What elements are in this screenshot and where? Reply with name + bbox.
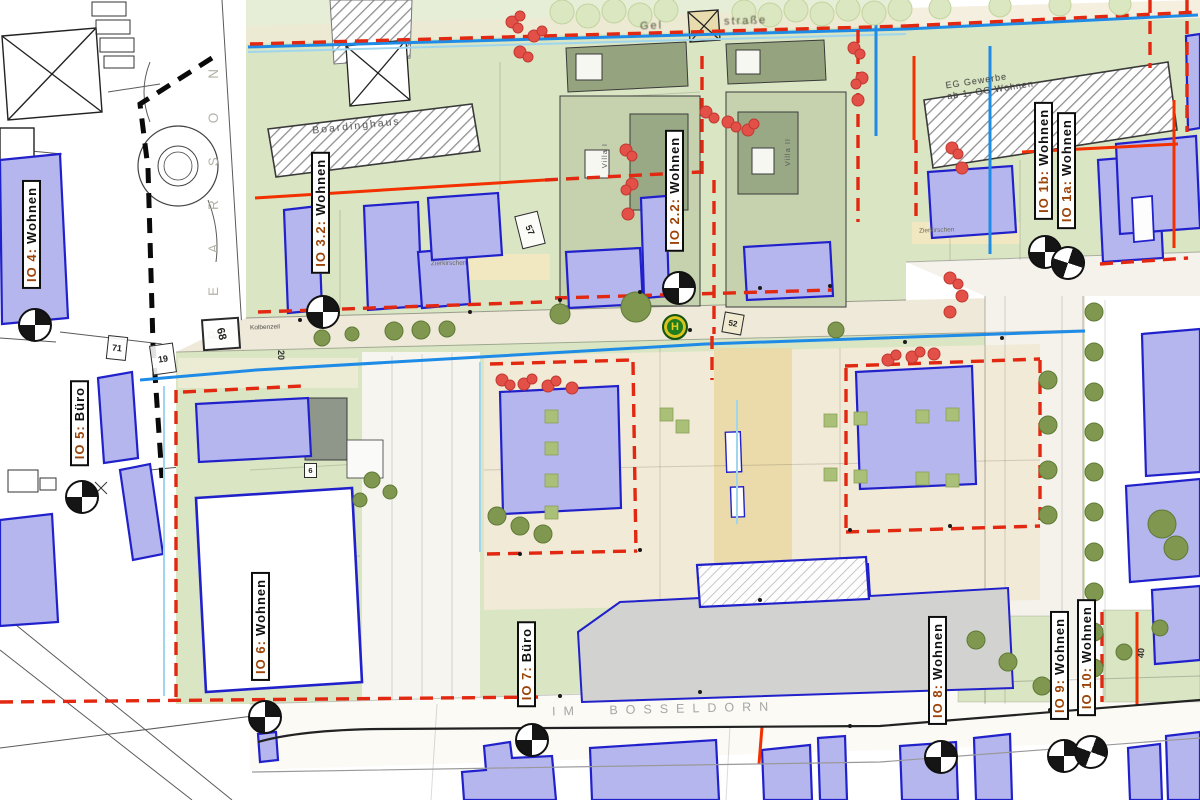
street-name-west-letters: PEARSON bbox=[206, 0, 221, 339]
villa-1-label: Villa I bbox=[600, 143, 609, 168]
io-label-10: IO 10:Wohnen bbox=[1077, 599, 1096, 716]
survey-marker bbox=[18, 308, 52, 342]
parcel-19: 19 bbox=[149, 342, 177, 375]
villa-2-label: Villa II bbox=[783, 138, 792, 166]
survey-marker bbox=[515, 723, 549, 757]
io-label-8: IO 8:Wohnen bbox=[928, 616, 947, 725]
parcel-40: 40 bbox=[1136, 648, 1147, 659]
io-label-4: IO 4:Wohnen bbox=[22, 180, 41, 289]
survey-marker bbox=[662, 271, 696, 305]
bus-stop-icon: H bbox=[662, 314, 688, 340]
parcel-68: 68 bbox=[201, 317, 241, 352]
io-label-7: IO 7:Büro bbox=[517, 621, 536, 707]
survey-marker bbox=[924, 740, 958, 774]
survey-marker bbox=[248, 700, 282, 734]
street-name-top-fragment-right: straße bbox=[724, 14, 768, 27]
zierkirschen-label-east: Zierkirschen bbox=[919, 226, 955, 234]
site-plan-canvas bbox=[0, 0, 1200, 800]
hatched-annex bbox=[697, 557, 869, 607]
io-label-3-2: IO 3.2:Wohnen bbox=[311, 152, 330, 274]
io-label-9: IO 9:Wohnen bbox=[1050, 611, 1069, 720]
parcel-71: 71 bbox=[106, 335, 128, 361]
io-label-5: IO 5:Büro bbox=[70, 380, 89, 466]
io-label-2-2: IO 2.2:Wohnen bbox=[665, 130, 684, 252]
survey-marker bbox=[306, 295, 340, 329]
site-plan: IO 4:Wohnen IO 5:Büro IO 3.2:Wohnen IO 2… bbox=[0, 0, 1200, 800]
io-label-6: IO 6:Wohnen bbox=[251, 572, 270, 681]
street-name-kolbenzeil: Kolbenzeil bbox=[250, 323, 280, 331]
zierkirschen-label-west: Zierkirschen bbox=[431, 260, 467, 268]
parcel-6: 6 bbox=[304, 463, 317, 478]
street-name-top-fragment-left: Gel bbox=[640, 20, 664, 33]
parcel-20: 20 bbox=[276, 350, 286, 360]
survey-marker bbox=[65, 480, 99, 514]
io-label-1b: IO 1b:Wohnen bbox=[1034, 102, 1053, 220]
io-label-1a: IO 1a:Wohnen bbox=[1057, 112, 1076, 229]
parcel-52: 52 bbox=[721, 311, 744, 335]
io6-building bbox=[196, 488, 362, 692]
